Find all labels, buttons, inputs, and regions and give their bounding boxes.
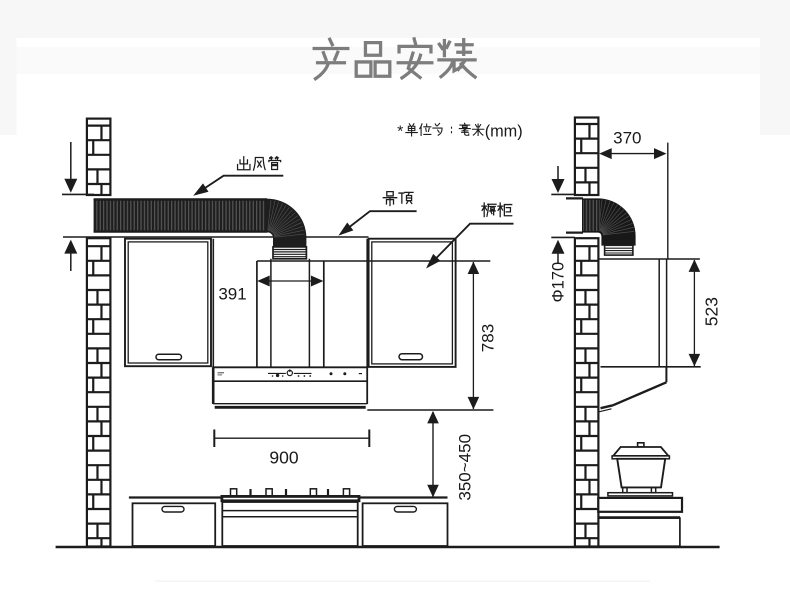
- svg-text:(mm): (mm): [485, 123, 523, 141]
- svg-text:350~450: 350~450: [456, 434, 475, 501]
- svg-text:370: 370: [613, 129, 641, 148]
- svg-text:523: 523: [702, 297, 722, 326]
- svg-text:783: 783: [479, 324, 498, 352]
- svg-text:900: 900: [269, 448, 298, 468]
- svg-text:Φ170: Φ170: [550, 262, 568, 303]
- svg-text:391: 391: [218, 284, 246, 303]
- svg-text:*: *: [397, 124, 403, 141]
